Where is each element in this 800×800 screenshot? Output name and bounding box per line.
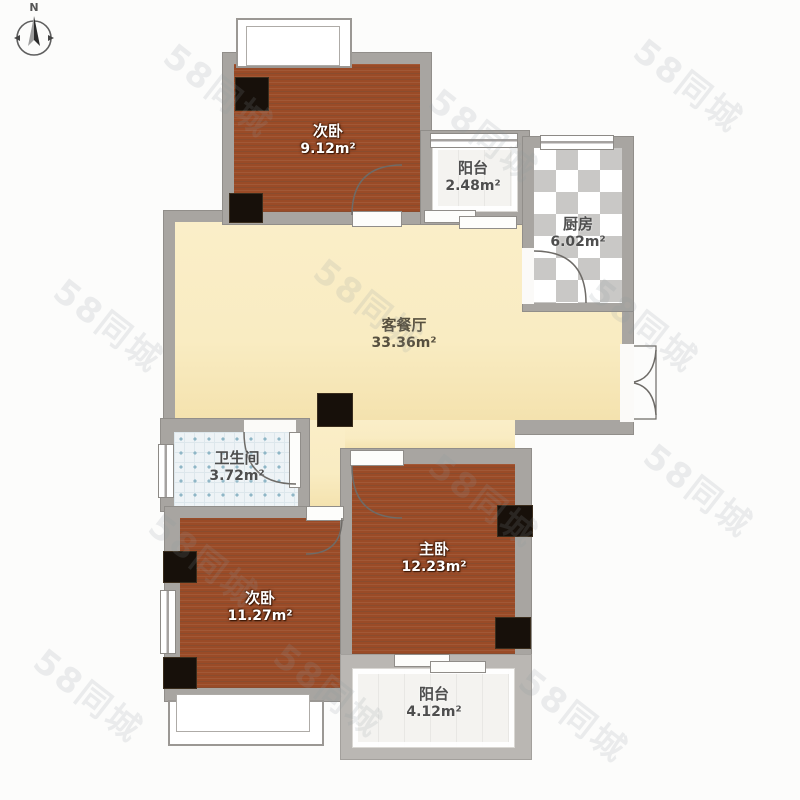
room-label-bedroom-left: 次卧 11.27m² (227, 589, 292, 625)
room-label-bedroom-top: 次卧 9.12m² (300, 122, 355, 158)
door-opening-kitchen (522, 248, 534, 304)
watermark-text: 58同城 (45, 265, 176, 382)
room-name: 阳台 (445, 159, 500, 178)
room-name: 次卧 (227, 589, 292, 608)
window-kitchen (540, 135, 614, 150)
door-opening-entrance (620, 344, 634, 422)
room-label-kitchen: 厨房 6.02m² (550, 215, 605, 251)
room-area: 12.23m² (401, 559, 466, 577)
entrance-door-frame (634, 346, 656, 419)
room-area: 11.27m² (227, 608, 292, 626)
window-bedroom-left (160, 590, 176, 654)
entrance-door-arc-upper (634, 350, 656, 382)
column (230, 194, 262, 222)
room-label-bedroom-master: 主卧 12.23m² (401, 540, 466, 576)
column (236, 78, 268, 110)
entrance-door-arc-lower (634, 383, 656, 415)
room-name: 阳台 (406, 685, 461, 704)
column (164, 658, 196, 688)
bay-window-bottom-inner (176, 694, 310, 732)
sliding-door-balcony-bottom-b (430, 661, 486, 673)
room-name: 客餐厅 (371, 316, 436, 335)
column (498, 506, 532, 536)
compass-north-text: N (29, 1, 38, 14)
floor-plan: 次卧 9.12m² 阳台 2.48m² 厨房 6.02m² 客餐厅 33.36m… (0, 0, 800, 800)
column (164, 552, 196, 582)
compass-icon: N (6, 0, 66, 66)
room-label-living: 客餐厅 33.36m² (371, 316, 436, 352)
window-bathroom (158, 444, 174, 498)
bay-window-top-inner (246, 26, 340, 66)
room-name: 卫生间 (209, 449, 264, 468)
room-name: 厨房 (550, 215, 605, 234)
column (318, 394, 352, 426)
watermark-text: 58同城 (25, 635, 156, 752)
room-living-floor-extension (340, 420, 515, 450)
door-leaf-bedroom-master (350, 450, 404, 466)
window-balcony-top (430, 133, 518, 148)
room-name: 主卧 (401, 540, 466, 559)
room-area: 3.72m² (209, 468, 264, 486)
sliding-door-balcony-top-b (459, 216, 517, 229)
column (496, 618, 530, 648)
room-name: 次卧 (300, 122, 355, 141)
room-area: 33.36m² (371, 335, 436, 353)
room-area: 9.12m² (300, 141, 355, 159)
watermark-text: 58同城 (635, 430, 766, 547)
watermark-text: 58同城 (625, 25, 756, 142)
room-label-balcony-bottom: 阳台 4.12m² (406, 685, 461, 721)
room-area: 4.12m² (406, 704, 461, 722)
room-area: 6.02m² (550, 234, 605, 252)
door-leaf-bedroom-left (306, 506, 344, 521)
door-leaf-bathroom (289, 432, 301, 488)
room-label-bathroom: 卫生间 3.72m² (209, 449, 264, 485)
door-opening-bathroom (244, 420, 296, 432)
room-area: 2.48m² (445, 178, 500, 196)
room-label-balcony-top: 阳台 2.48m² (445, 159, 500, 195)
door-leaf-bedroom-top (352, 211, 402, 227)
